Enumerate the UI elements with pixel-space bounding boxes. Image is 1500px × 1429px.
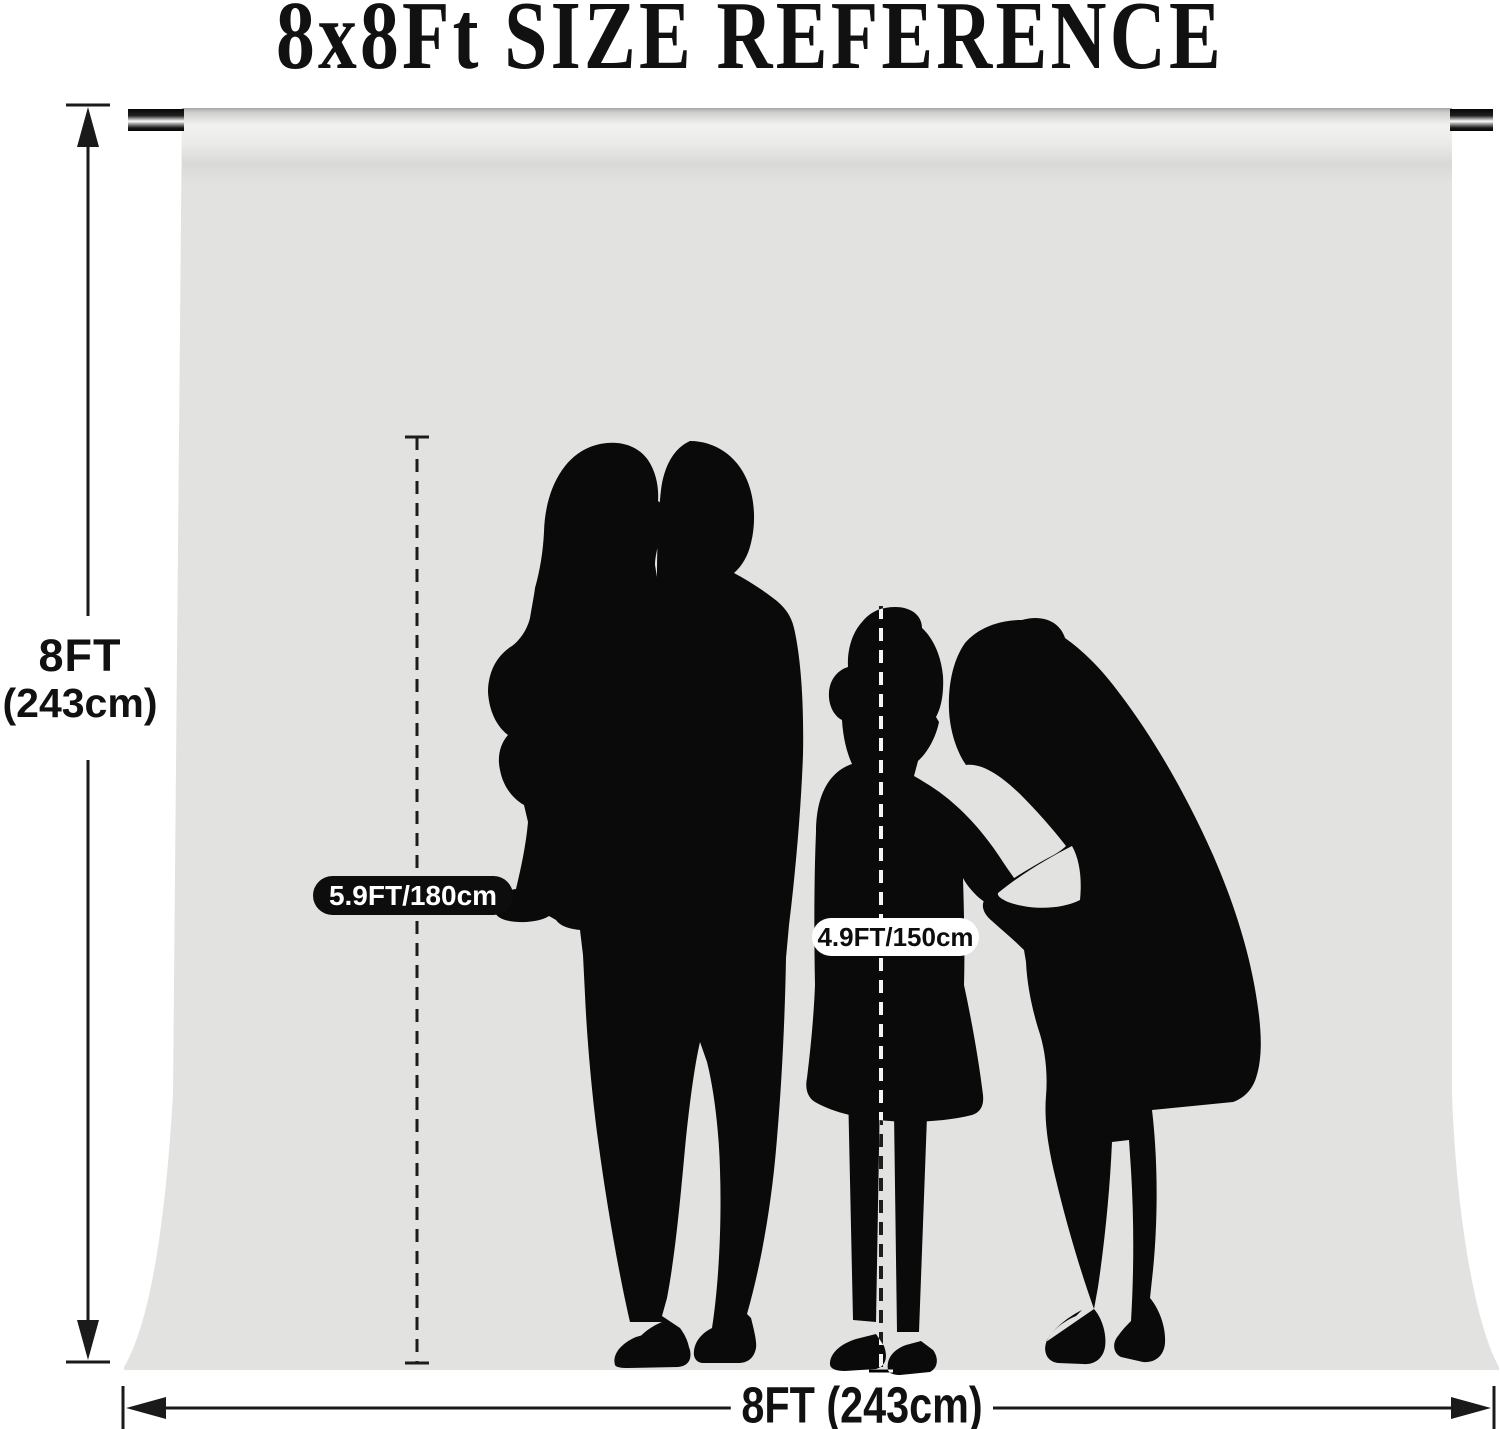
backdrop-sweep [124,108,1499,1370]
backdrop-roll [182,108,1452,184]
size-reference-diagram: 8x8Ft SIZE REFERENCE [0,0,1500,1429]
adult-height-badge: 5.9FT/180cm [313,876,513,915]
backdrop-height-cm: (243cm) [0,680,160,726]
crossbar-rod-right-icon [1450,109,1493,131]
height-dimension-arrow [66,105,110,1362]
backdrop-height-feet: 8FT [0,632,160,680]
backdrop-width-label: 8FT (243cm) [731,1377,993,1429]
girl-left-leg-silhouette [848,1088,880,1322]
crossbar-rod-left-icon [128,109,184,131]
backdrop-scene [0,0,1500,1429]
backdrop-height-label: 8FT (243cm) [0,632,160,726]
child-height-badge: 4.9FT/150cm [812,918,979,956]
